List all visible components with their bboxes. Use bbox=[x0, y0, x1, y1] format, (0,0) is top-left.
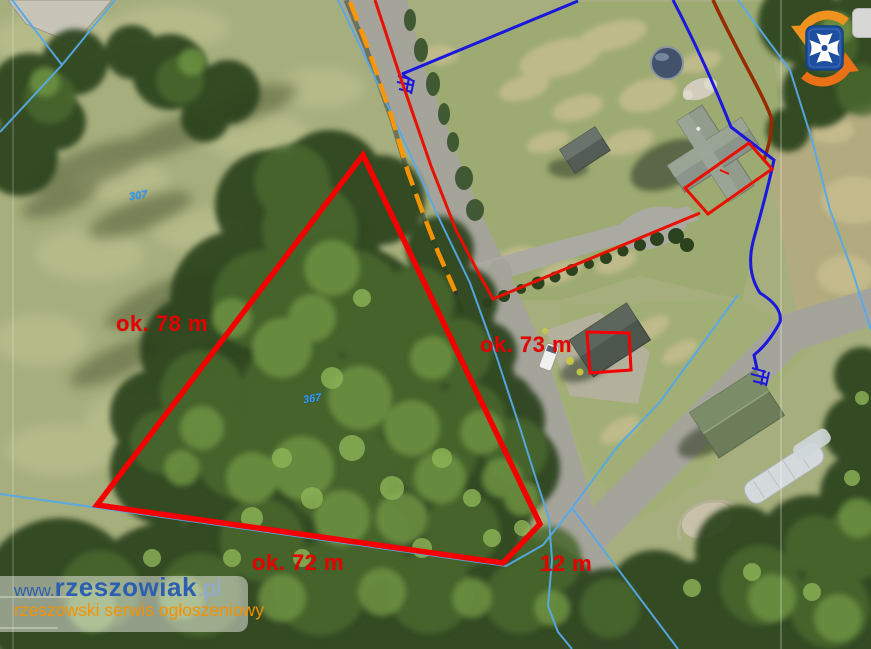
aerial-map: ok. 78 m ok. 73 m ok. 72 m 12 m 307 367 … bbox=[0, 0, 871, 649]
watermark-url: www.rzeszowiak.pl bbox=[14, 574, 290, 600]
dimension-label-left: ok. 78 m bbox=[116, 311, 208, 337]
watermark: www.rzeszowiak.pl rzeszowski serwis ogło… bbox=[0, 574, 290, 620]
dimension-label-short: 12 m bbox=[540, 551, 592, 577]
watermark-www: www. bbox=[14, 582, 55, 599]
parcel-number-field: 307 bbox=[128, 189, 148, 203]
parcel-number-plot: 367 bbox=[302, 392, 322, 406]
garden-pool bbox=[651, 47, 683, 79]
watermark-tld: .pl bbox=[197, 577, 221, 600]
rzeszowiak-logo bbox=[788, 9, 862, 89]
watermark-tagline: rzeszowski serwis ogłoszeniowy bbox=[14, 601, 290, 620]
dimension-label-right: ok. 73 m bbox=[480, 332, 572, 358]
utility-line-end-dot bbox=[454, 291, 458, 295]
pool-highlight bbox=[655, 53, 669, 61]
partial-corner-button[interactable] bbox=[852, 8, 871, 38]
dimension-label-bottom: ok. 72 m bbox=[252, 550, 344, 576]
watermark-brand: rzeszowiak bbox=[55, 574, 197, 600]
